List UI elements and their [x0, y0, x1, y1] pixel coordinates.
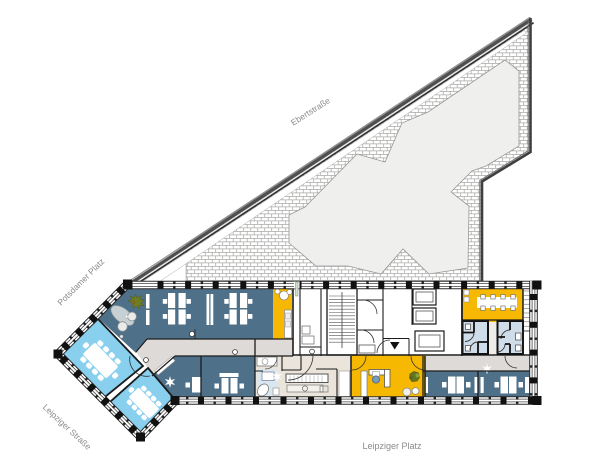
svg-text:Leipziger Platz: Leipziger Platz — [362, 441, 422, 451]
